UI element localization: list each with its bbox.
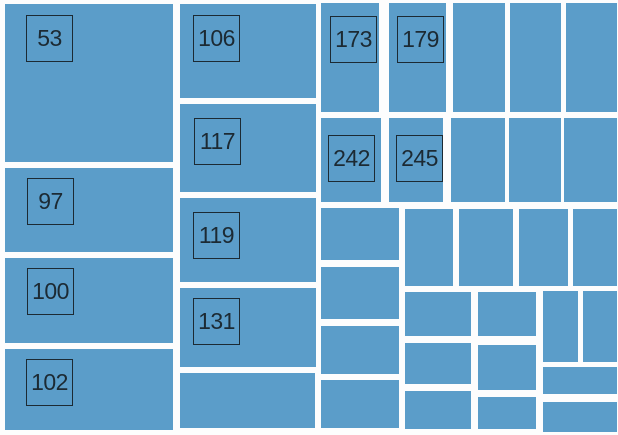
treemap-cell: [478, 292, 536, 336]
treemap-cell: [509, 118, 561, 202]
treemap-cell: [321, 380, 399, 428]
treemap-cell: [405, 391, 471, 429]
treemap-cell-242: 242: [321, 118, 381, 202]
treemap-cell-245: 245: [389, 118, 443, 202]
treemap-cell: [180, 373, 315, 428]
cell-value-label: 97: [27, 178, 74, 225]
cell-value-label: 245: [396, 135, 443, 182]
treemap-cell: [583, 291, 617, 362]
treemap-cell: [564, 118, 617, 202]
treemap-cell: [543, 291, 578, 362]
treemap-cell: [321, 267, 399, 319]
treemap-cell: [321, 208, 399, 260]
cell-value-label: 119: [193, 212, 240, 259]
treemap-cell-179: 179: [389, 3, 446, 112]
treemap-cell: [478, 397, 536, 429]
treemap-cell-53: 53: [5, 4, 173, 162]
cell-value-label: 102: [26, 359, 73, 406]
treemap-cell: [519, 209, 568, 286]
treemap-cell: [573, 209, 617, 286]
treemap-cell: [405, 292, 471, 336]
treemap-cell: [510, 3, 561, 112]
treemap-cell: [405, 343, 471, 384]
treemap-cell-119: 119: [180, 198, 316, 282]
cell-value-label: 100: [27, 268, 74, 315]
treemap-cell: [459, 209, 513, 286]
treemap-canvas: 5397100102106117119131173179242245: [0, 0, 618, 435]
treemap-cell-131: 131: [180, 288, 316, 367]
treemap-cell: [405, 209, 453, 286]
cell-value-label: 106: [193, 15, 240, 62]
treemap-cell: [453, 3, 505, 112]
treemap-cell: [478, 345, 536, 390]
cell-value-label: 242: [328, 135, 375, 182]
treemap-cell: [451, 118, 505, 202]
cell-value-label: 173: [330, 16, 377, 63]
cell-value-label: 131: [193, 298, 240, 345]
treemap-cell-117: 117: [180, 104, 316, 192]
treemap-cell: [543, 367, 617, 394]
treemap-cell: [543, 402, 617, 432]
cell-value-label: 117: [194, 118, 241, 165]
treemap-cell-102: 102: [5, 349, 173, 430]
treemap-cell-97: 97: [5, 168, 173, 252]
treemap-cell-100: 100: [5, 258, 173, 343]
treemap-cell: [321, 326, 399, 374]
treemap-cell-106: 106: [180, 4, 316, 98]
cell-value-label: 179: [397, 16, 444, 63]
cell-value-label: 53: [26, 15, 73, 62]
treemap-cell: [566, 3, 617, 112]
treemap-cell-173: 173: [321, 3, 379, 112]
